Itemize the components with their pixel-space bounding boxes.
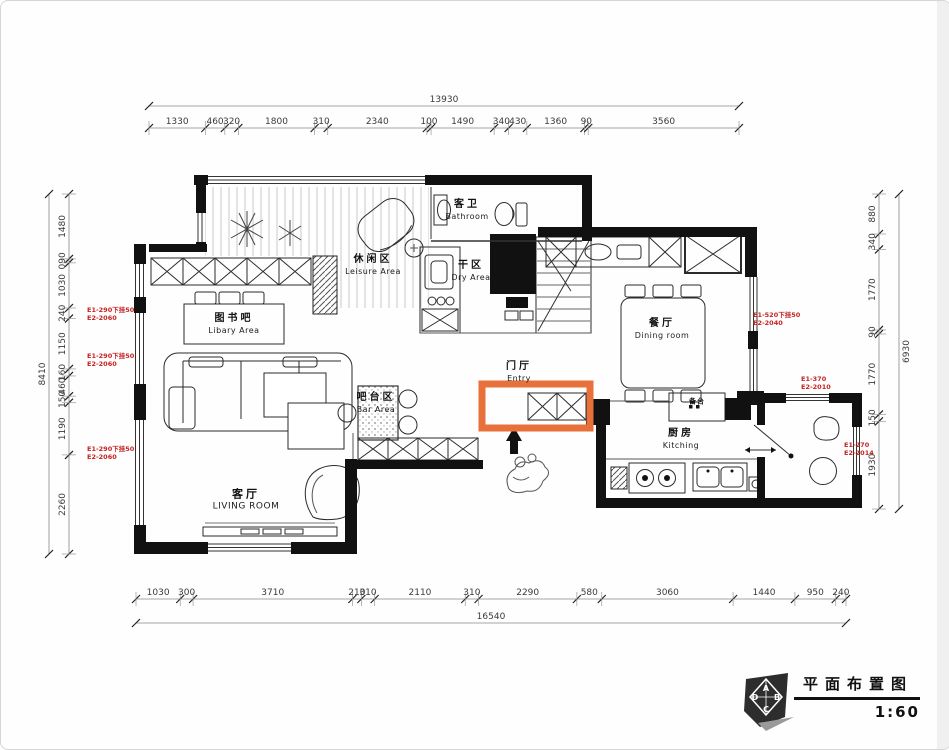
window-tag-4: E1-520下挂50E2-2040 xyxy=(753,311,800,328)
room-label-dining: 餐厅Dining room xyxy=(635,318,690,341)
kitchen-fixtures xyxy=(606,459,763,493)
dim-label: 1770 xyxy=(868,363,878,386)
dim-label: 8410 xyxy=(38,362,48,385)
dim-label: 150 xyxy=(868,409,878,426)
room-label-bar: 吧台区Bar Area xyxy=(357,392,396,415)
dim-label: 1440 xyxy=(753,588,776,598)
window-tag-3: E1-290下挂50E2-2060 xyxy=(87,445,134,462)
svg-text:C: C xyxy=(763,705,769,714)
dim-label: 320 xyxy=(223,117,240,127)
dim-label: 240 xyxy=(58,304,68,321)
dim-label: 1330 xyxy=(166,117,189,127)
room-label-kitchen: 厨房Kitching xyxy=(663,428,699,451)
room-label-leisure: 休闲区Leisure Area xyxy=(345,254,401,277)
tv-console xyxy=(203,523,337,536)
room-label-dry-area: 干区Dry Area xyxy=(451,260,490,283)
cabinet-row xyxy=(151,256,337,314)
fridge-icon xyxy=(685,235,741,273)
dim-label: 950 xyxy=(807,588,824,598)
dim-label: 090 xyxy=(58,252,68,269)
window-tag-2: E1-290下挂50E2-2060 xyxy=(87,352,134,369)
dim-label: 2110 xyxy=(409,588,432,598)
title-block: A B C D 平面布置图 1:60 xyxy=(736,665,926,735)
dim-label: 310 xyxy=(359,588,376,598)
dim-label: 150 xyxy=(58,391,68,408)
toilet-icon xyxy=(495,203,513,226)
compass-logo-icon: A B C D xyxy=(736,665,796,733)
dim-label: 3060 xyxy=(656,588,679,598)
dim-label: 2290 xyxy=(516,588,539,598)
dim-label: 1480 xyxy=(58,215,68,238)
svg-text:A: A xyxy=(763,684,770,693)
drawing-scale: 1:60 xyxy=(794,703,920,721)
dim-label: 1190 xyxy=(58,417,68,440)
dim-label: 3560 xyxy=(652,117,675,127)
person-sketch-icon xyxy=(507,454,549,493)
title-rule xyxy=(794,697,920,700)
dim-label: 340 xyxy=(493,117,510,127)
dim-label: 2260 xyxy=(58,493,68,516)
floorplan-canvas: 1393016540841014800901030240115016046015… xyxy=(0,0,949,750)
coffee-table-2 xyxy=(288,403,344,449)
dim-label: 100 xyxy=(420,117,437,127)
shoe-cabinets xyxy=(358,438,478,460)
dim-label: 90 xyxy=(868,326,878,338)
room-label-living: 客厅LIVING ROOM xyxy=(213,488,280,513)
room-label-bathroom: 客卫Bathroom xyxy=(445,199,488,222)
svg-text:B: B xyxy=(774,693,780,702)
dim-label: 1770 xyxy=(868,278,878,301)
dim-label: 1800 xyxy=(265,117,288,127)
dim-label: 1030 xyxy=(147,588,170,598)
dim-label: 880 xyxy=(868,205,878,222)
window-tag-6: E1-270E2-2014 xyxy=(844,441,874,458)
dim-label: 2340 xyxy=(366,117,389,127)
svg-text:D: D xyxy=(752,693,759,702)
dim-label: 1360 xyxy=(544,117,567,127)
dim-label: 310 xyxy=(463,588,480,598)
dim-label: 3710 xyxy=(261,588,284,598)
dim-label: 90 xyxy=(581,117,593,127)
dim-label: 580 xyxy=(581,588,598,598)
window-tag-5: E1-370E2-2010 xyxy=(801,375,831,392)
window-tag-1: E1-290下挂50E2-2060 xyxy=(87,306,134,323)
dim-label: 310 xyxy=(313,117,330,127)
dim-label: 1150 xyxy=(58,332,68,355)
room-label-library: 图书吧Libary Area xyxy=(208,313,259,336)
dim-label: 240 xyxy=(832,588,849,598)
dim-label: 6930 xyxy=(902,340,912,363)
dim-label: 16540 xyxy=(477,612,506,622)
drawing-title: 平面布置图 xyxy=(798,673,918,694)
dim-label: 430 xyxy=(509,117,526,127)
dim-label: 1490 xyxy=(451,117,474,127)
entry-highlight-box[interactable] xyxy=(482,384,590,428)
room-label-entry: 门厅Entry xyxy=(506,361,532,384)
small-bath-fixtures xyxy=(810,417,840,485)
dining-table xyxy=(621,285,705,402)
dim-label: 300 xyxy=(178,588,195,598)
dim-label: 13930 xyxy=(430,95,459,105)
dim-label: 460 xyxy=(206,117,223,127)
dim-label: 1030 xyxy=(58,274,68,297)
dim-label: 340 xyxy=(868,233,878,250)
room-label-prep-counter: 备台 xyxy=(689,398,705,407)
